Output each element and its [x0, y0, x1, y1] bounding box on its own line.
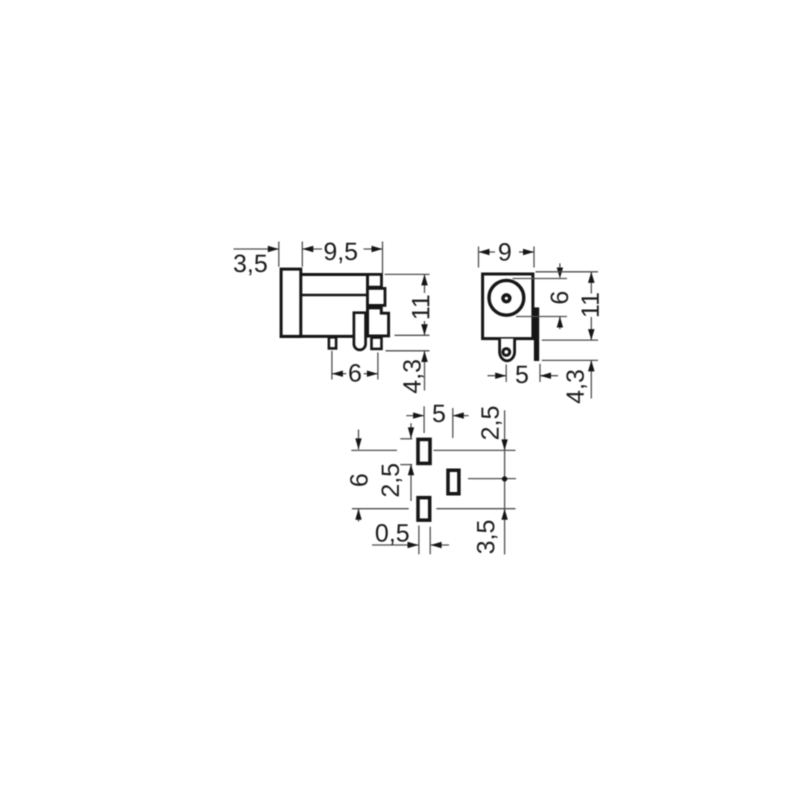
svg-text:0,5: 0,5 [375, 519, 410, 547]
svg-text:9,5: 9,5 [323, 238, 358, 266]
svg-text:3,5: 3,5 [233, 250, 268, 278]
svg-text:11: 11 [407, 294, 435, 320]
svg-text:6: 6 [546, 291, 574, 305]
svg-text:2,5: 2,5 [377, 463, 405, 498]
svg-text:6: 6 [345, 473, 373, 487]
svg-text:3,5: 3,5 [472, 520, 500, 555]
svg-text:9: 9 [498, 238, 512, 266]
svg-text:4,3: 4,3 [562, 369, 590, 404]
svg-text:5: 5 [515, 361, 529, 389]
svg-text:11: 11 [577, 292, 605, 318]
svg-text:4,3: 4,3 [398, 359, 426, 394]
svg-text:2,5: 2,5 [477, 406, 505, 441]
svg-text:5: 5 [432, 400, 446, 428]
svg-text:6: 6 [348, 359, 362, 387]
